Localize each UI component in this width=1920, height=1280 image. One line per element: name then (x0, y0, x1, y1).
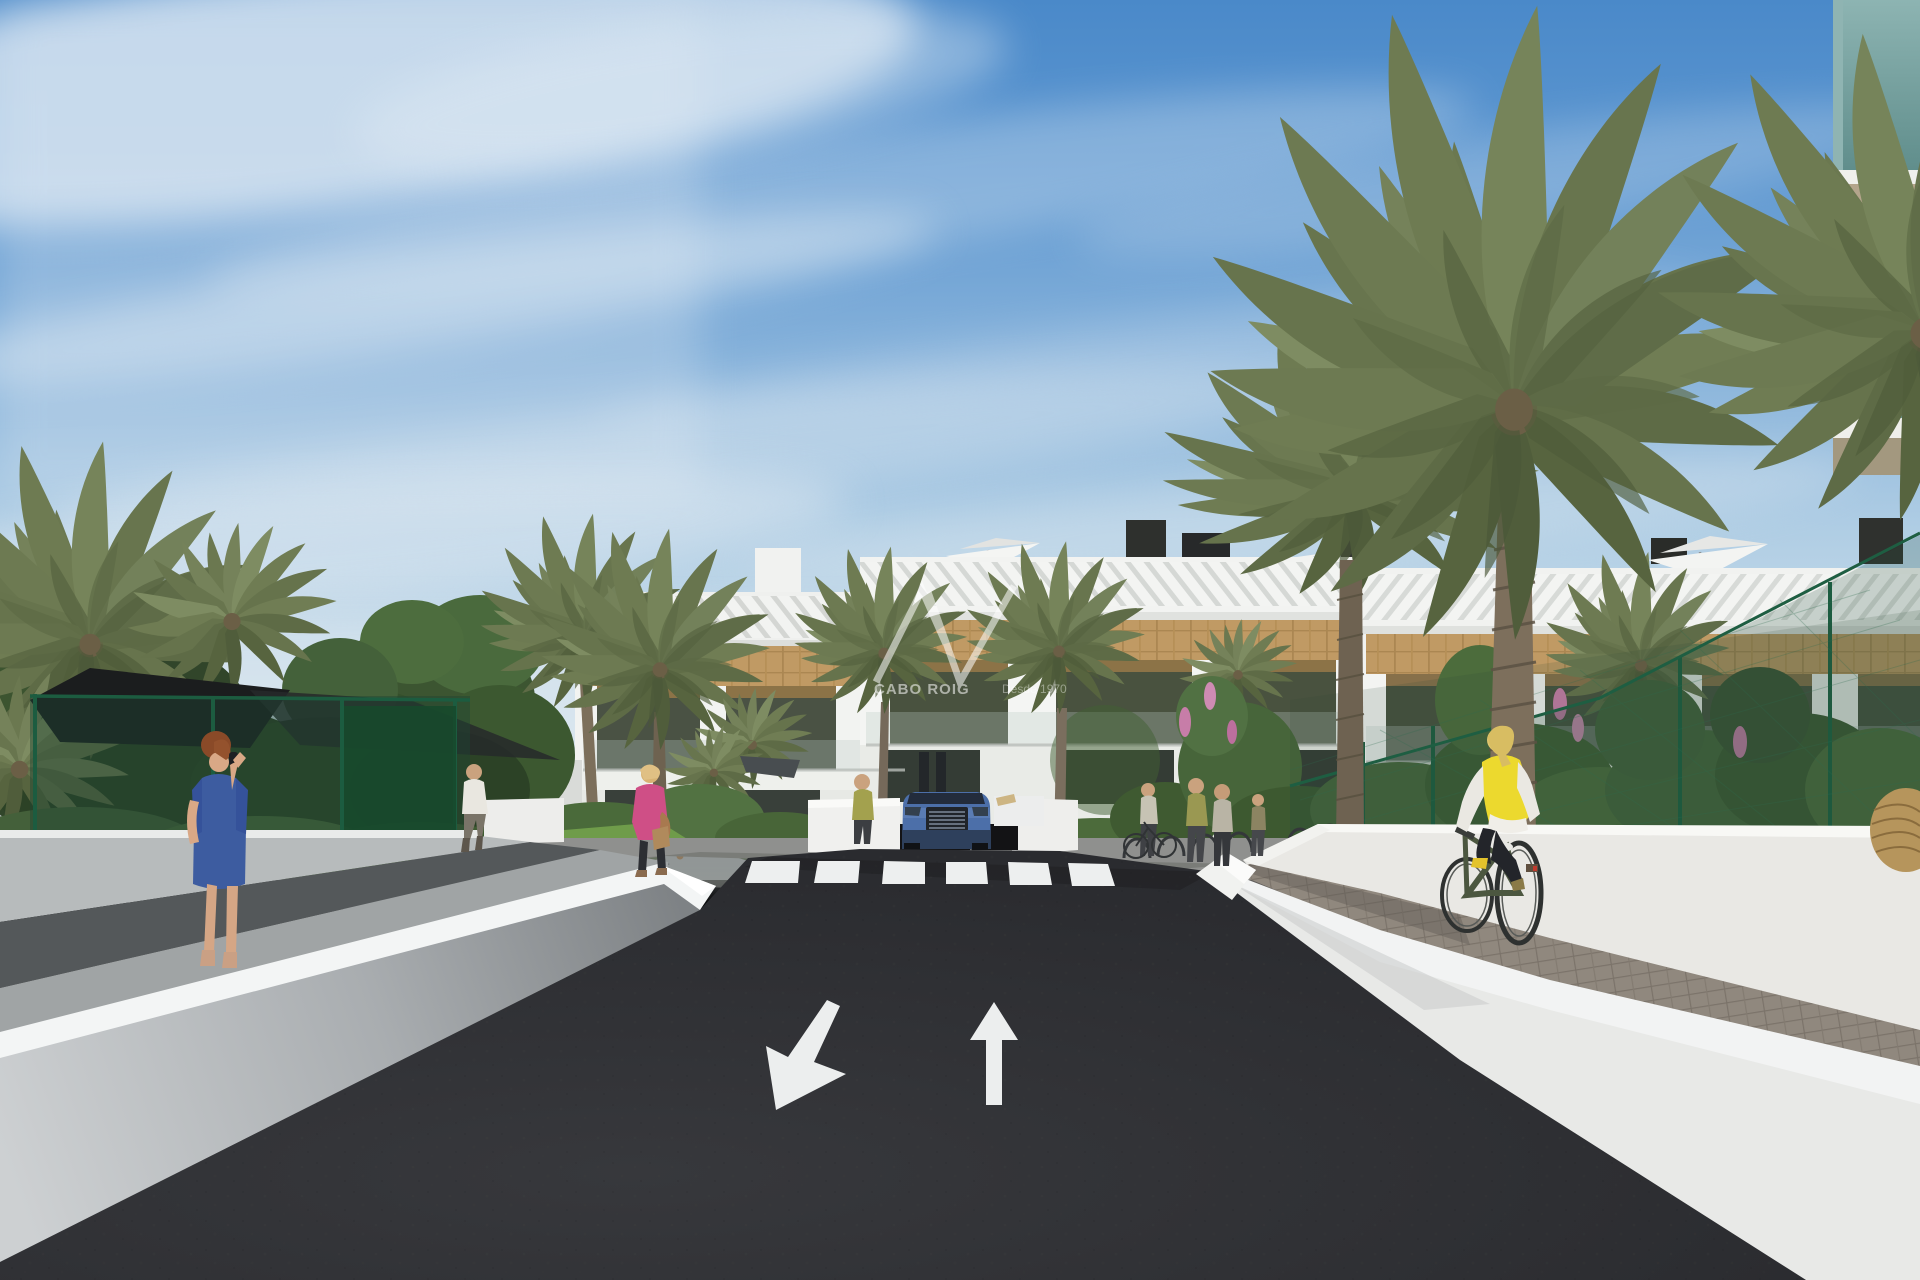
svg-text:CABO ROIG: CABO ROIG (874, 681, 970, 698)
svg-text:Desde 1970: Desde 1970 (1002, 682, 1067, 696)
